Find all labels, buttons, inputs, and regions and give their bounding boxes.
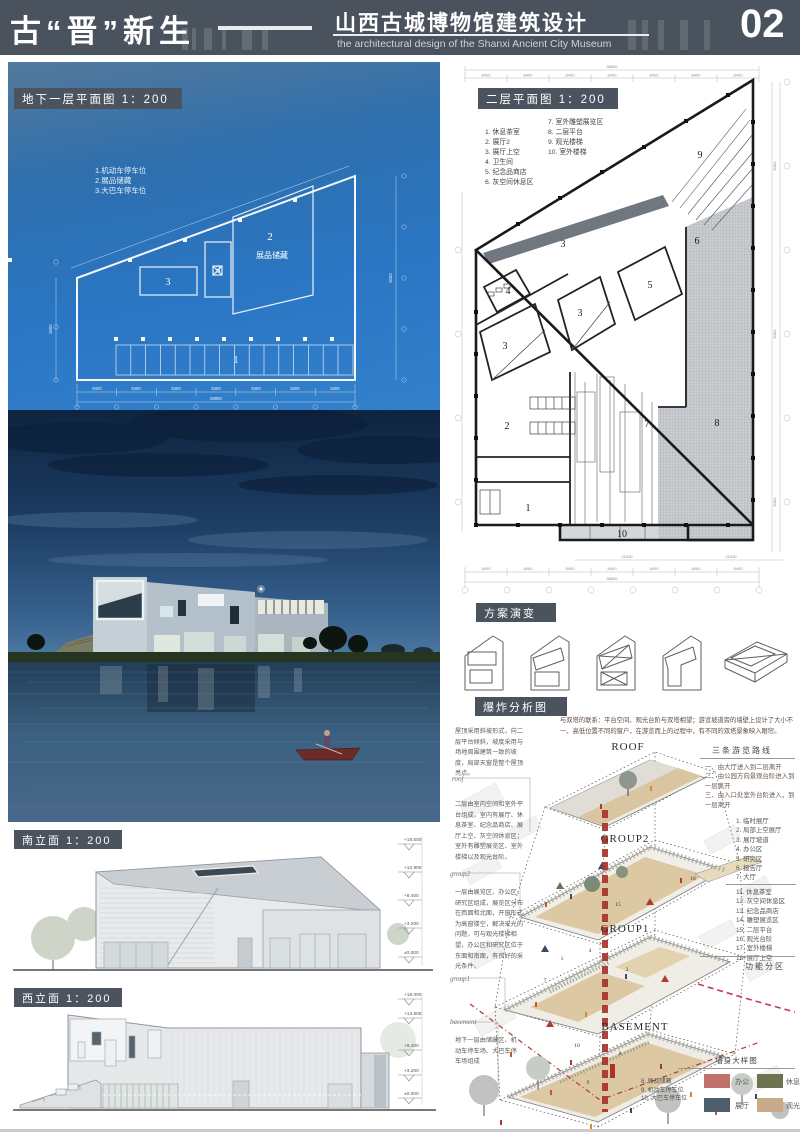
route-item: 三、由入口处室外台阶进入，到一层离开 bbox=[705, 791, 795, 810]
header: 古“晋”新生 山西古城博物馆建筑设计 the architectural des… bbox=[0, 0, 800, 55]
svg-text:8400: 8400 bbox=[566, 566, 576, 571]
svg-text:8400: 8400 bbox=[482, 73, 492, 78]
zone-item: 11. 休息茶室 bbox=[736, 888, 798, 897]
group2-tag: group2 bbox=[450, 870, 470, 878]
second-plan-title-bar: 二层平面图 1：200 bbox=[478, 88, 618, 109]
svg-text:+8.400: +8.400 bbox=[404, 1043, 419, 1049]
svg-text:8400: 8400 bbox=[482, 566, 492, 571]
legend-label: 观光 bbox=[786, 1101, 800, 1111]
svg-text:9: 9 bbox=[698, 150, 703, 161]
svg-text:16: 16 bbox=[690, 876, 696, 882]
west-elevation-drawing: +18.000 +13.800 +8.400 +3.200 ±0.000 bbox=[8, 985, 440, 1132]
svg-text:8400: 8400 bbox=[330, 386, 340, 391]
west-elevation-panel: +18.000 +13.800 +8.400 +3.200 ±0.000 bbox=[8, 985, 440, 1132]
svg-text:+18.000: +18.000 bbox=[404, 992, 422, 998]
basement-note: 地下一层由储藏区、机动车停车场、大巴车停车场组成 bbox=[455, 1036, 517, 1068]
title-dash bbox=[218, 26, 312, 30]
project-title-en: the architectural design of the Shanxi A… bbox=[337, 38, 611, 50]
south-elevation-drawing: +18.000 +12.900 +8.400 +3.200 ±0.000 bbox=[8, 826, 440, 986]
second-plan-legend-right: 7. 室外雕塑展览区 8. 二层平台 9. 观光楼梯 10. 室外楼梯 bbox=[548, 118, 603, 158]
svg-text:8400: 8400 bbox=[692, 73, 702, 78]
zone-item: 1. 临时展厅 bbox=[736, 817, 796, 826]
routes-title: 三条游览路线 bbox=[712, 745, 796, 756]
svg-text:8400: 8400 bbox=[692, 566, 702, 571]
svg-text:4: 4 bbox=[589, 948, 592, 954]
group1-tag: group1 bbox=[450, 975, 470, 983]
ramp-lines bbox=[575, 372, 652, 525]
svg-text:+3.200: +3.200 bbox=[404, 921, 419, 927]
svg-text:3: 3 bbox=[561, 239, 566, 250]
legend-line: 2.展品储藏 bbox=[95, 176, 146, 186]
zone-item: 15. 二层平台 bbox=[736, 926, 798, 935]
svg-text:8400: 8400 bbox=[650, 566, 660, 571]
sketch-4 bbox=[663, 636, 701, 690]
svg-text:1: 1 bbox=[526, 503, 531, 514]
svg-text:±0.000: ±0.000 bbox=[404, 1091, 419, 1097]
svg-text:8400: 8400 bbox=[524, 566, 534, 571]
explosion-intro: 与双塔的联系：平台空间、观光台阶与双塔相望；游览坡道旁的墙壁上设计了大小不一、高… bbox=[560, 716, 796, 737]
site-boundary-pink bbox=[698, 984, 795, 1012]
svg-text:8400: 8400 bbox=[290, 386, 300, 391]
route-item: 二、由公园方向景观台阶进入到一层离开 bbox=[705, 772, 795, 791]
svg-text:8400: 8400 bbox=[772, 497, 777, 507]
zone-item: 2. 局部上空展厅 bbox=[736, 826, 796, 835]
basement-tag: basement bbox=[450, 1018, 476, 1026]
svg-text:21000: 21000 bbox=[725, 554, 737, 559]
legend-line: 6. 灰空间休息区 bbox=[485, 178, 533, 188]
outdoor-stair-strip bbox=[560, 525, 658, 540]
zone-item: 12. 灰空间休息区 bbox=[736, 897, 798, 906]
title-underline bbox=[333, 34, 649, 36]
svg-text:9: 9 bbox=[587, 1080, 590, 1086]
svg-text:8400: 8400 bbox=[48, 324, 53, 334]
svg-text:3: 3 bbox=[166, 277, 171, 288]
svg-text:ROOF: ROOF bbox=[611, 741, 644, 753]
skyline-silhouette bbox=[182, 28, 332, 50]
sketch-1 bbox=[465, 636, 503, 690]
svg-text:8400: 8400 bbox=[388, 273, 393, 283]
routes-list: 一、由大厅进入到二层离开 二、由公园方向景观台阶进入到一层离开 三、由入口处室外… bbox=[705, 763, 795, 810]
svg-text:8: 8 bbox=[619, 1051, 622, 1057]
svg-text:8400: 8400 bbox=[251, 386, 261, 391]
svg-text:3: 3 bbox=[216, 265, 221, 276]
legend-line: 2. 展厅2 bbox=[485, 138, 533, 148]
legend-line: 7. 室外雕塑展览区 bbox=[548, 118, 603, 128]
route-item: 一、由大厅进入到二层离开 bbox=[705, 763, 795, 772]
svg-text:8400: 8400 bbox=[772, 329, 777, 339]
svg-text:10: 10 bbox=[574, 1043, 580, 1049]
zone-list-b: 11. 休息茶室 12. 灰空间休息区 13. 纪念品商店 14. 雕塑展览区 … bbox=[736, 888, 798, 963]
svg-text:±0.000: ±0.000 bbox=[404, 950, 419, 956]
evolution-panel bbox=[455, 628, 795, 700]
svg-text:2: 2 bbox=[505, 421, 510, 432]
svg-text:3: 3 bbox=[578, 308, 583, 319]
svg-text:7: 7 bbox=[645, 419, 650, 430]
svg-text:+8.400: +8.400 bbox=[404, 893, 419, 899]
presentation-board: 古“晋”新生 山西古城博物馆建筑设计 the architectural des… bbox=[0, 0, 800, 1132]
roof-note: 屋顶采用斜坡形式，向二层平台倾斜，坡度采用与场地周围建筑一致的坡度，局部天窗是整… bbox=[455, 727, 525, 780]
svg-text:8400: 8400 bbox=[171, 386, 181, 391]
zone-item: 17. 室外楼梯 bbox=[736, 944, 798, 953]
svg-text:8400: 8400 bbox=[772, 161, 777, 171]
svg-text:+18.000: +18.000 bbox=[404, 837, 422, 843]
svg-text:+3.200: +3.200 bbox=[404, 1068, 419, 1074]
svg-text:GROUP1: GROUP1 bbox=[601, 923, 650, 935]
routes-underline bbox=[700, 758, 795, 759]
svg-text:10: 10 bbox=[617, 529, 627, 540]
legend-label: 办公 bbox=[735, 1077, 749, 1087]
terrace-hatch bbox=[658, 197, 753, 525]
svg-text:7: 7 bbox=[544, 978, 547, 984]
svg-text:8400: 8400 bbox=[734, 73, 744, 78]
legend-line: 9. 观光楼梯 bbox=[548, 138, 603, 148]
legend-swatch-sightseeing bbox=[757, 1098, 783, 1112]
second-plan-legend-left: 1. 休息茶室 2. 展厅2 3. 展厅上空 4. 卫生间 5. 纪念品商店 6… bbox=[485, 128, 533, 188]
roof-slab bbox=[550, 760, 705, 827]
svg-text:5: 5 bbox=[648, 280, 653, 291]
svg-text:6: 6 bbox=[695, 236, 700, 247]
legend-line: 1. 休息茶室 bbox=[485, 128, 533, 138]
svg-text:8400: 8400 bbox=[650, 73, 660, 78]
svg-text:15: 15 bbox=[615, 902, 621, 908]
legend-line: 1.机动车停车位 bbox=[95, 166, 146, 176]
zone-item: 14. 雕塑展览区 bbox=[736, 916, 798, 925]
svg-text:2: 2 bbox=[267, 231, 273, 243]
svg-text:21000: 21000 bbox=[621, 554, 633, 559]
svg-text:1: 1 bbox=[234, 355, 239, 366]
svg-text:2: 2 bbox=[626, 967, 629, 973]
night-rendering bbox=[8, 410, 440, 822]
svg-text:58800: 58800 bbox=[606, 576, 618, 581]
svg-text:3: 3 bbox=[503, 341, 508, 352]
board-series-title: 古“晋”新生 bbox=[10, 6, 195, 51]
group1-note: 一层由展览区、办公区、研究区组成，展览区分布在西面和北面，开窗形式为高窗镂空，解… bbox=[455, 888, 525, 973]
second-floor-plan-panel: 58800 84008400 84008400 84008400 8400 21… bbox=[450, 62, 795, 597]
legend-label: 休息 bbox=[786, 1077, 800, 1087]
interior-walls bbox=[476, 227, 686, 525]
legend-swatch-rest bbox=[757, 1074, 783, 1088]
evolution-title-bar: 方案演变 bbox=[476, 603, 556, 622]
zone-footer-rule bbox=[700, 956, 795, 957]
group2-note: 二层由室内空间和室外平台组成，室内有展厅、休息茶室、纪念品商店、展厅上空、灰空间… bbox=[455, 800, 525, 864]
zone-divider bbox=[726, 884, 796, 885]
legend-label: 展厅 bbox=[735, 1101, 749, 1111]
svg-text:8400: 8400 bbox=[92, 386, 102, 391]
svg-text:1: 1 bbox=[561, 956, 564, 962]
svg-text:8400: 8400 bbox=[131, 386, 141, 391]
sketch-3 bbox=[597, 636, 635, 690]
svg-text:8400: 8400 bbox=[566, 73, 576, 78]
legend-line: 4. 卫生间 bbox=[485, 158, 533, 168]
tree bbox=[380, 1022, 416, 1058]
svg-text:8400: 8400 bbox=[211, 386, 221, 391]
zone-item: 16. 观光台阶 bbox=[736, 935, 798, 944]
dimension-labels: 8400 8400 8400 8400 8400 8400 8400 58800… bbox=[48, 273, 393, 401]
legend-line: 8. 二层平台 bbox=[548, 128, 603, 138]
svg-text:+13.800: +13.800 bbox=[404, 1011, 422, 1017]
svg-text:4: 4 bbox=[506, 286, 511, 297]
legend-line: 10. 室外楼梯 bbox=[548, 148, 603, 158]
south-elevation-panel: +18.000 +12.900 +8.400 +3.200 ±0.000 bbox=[8, 826, 440, 986]
legend-title: 墙身大样图 bbox=[678, 1055, 795, 1069]
legend-swatch-office bbox=[704, 1074, 730, 1088]
zone-item: 6. 报告厅 bbox=[736, 864, 796, 873]
zone-item: 7. 大厅 bbox=[736, 873, 796, 882]
column-grid-dots bbox=[8, 198, 334, 341]
legend-line: 3.大巴车停车位 bbox=[95, 186, 146, 196]
zone-item: 4. 办公区 bbox=[736, 845, 796, 854]
elevation-marks: +18.000 +12.900 +8.400 +3.200 ±0.000 bbox=[398, 836, 422, 966]
evolution-sketches bbox=[455, 628, 795, 700]
legend-line: 5. 纪念品商店 bbox=[485, 168, 533, 178]
svg-text:GROUP2: GROUP2 bbox=[601, 833, 650, 845]
svg-text:58800: 58800 bbox=[210, 396, 222, 401]
legend-line: 3. 展厅上空 bbox=[485, 148, 533, 158]
night-rendering-panel bbox=[8, 410, 440, 822]
svg-text:8400: 8400 bbox=[608, 73, 618, 78]
room2-name: 展品储藏 bbox=[256, 250, 288, 260]
room-numbers: 2 3 3 1 展品储藏 bbox=[166, 231, 289, 366]
basement-plan-drawing: 8400 8400 8400 8400 8400 8400 8400 58800… bbox=[8, 62, 440, 410]
svg-text:8400: 8400 bbox=[608, 566, 618, 571]
svg-text:8400: 8400 bbox=[734, 566, 744, 571]
zone-footer: 功能分区 bbox=[745, 961, 785, 972]
svg-text:8400: 8400 bbox=[524, 73, 534, 78]
sketch-5 bbox=[725, 642, 787, 682]
zone-list-a: 1. 临时展厅 2. 局部上空展厅 3. 展厅坡道 4. 办公区 5. 研究区 … bbox=[736, 817, 796, 883]
svg-text:8: 8 bbox=[715, 418, 720, 429]
roof-tag: roof bbox=[452, 775, 463, 783]
page-number: 02 bbox=[740, 2, 785, 47]
zone-item: 13. 纪念品商店 bbox=[736, 907, 798, 916]
project-title-cn: 山西古城博物馆建筑设计 bbox=[335, 7, 588, 37]
basement-plan-legend: 1.机动车停车位 2.展品储藏 3.大巴车停车位 bbox=[95, 166, 146, 196]
legend-swatch-exhibition bbox=[704, 1098, 730, 1112]
svg-text:+12.900: +12.900 bbox=[404, 865, 422, 871]
svg-text:BASEMENT: BASEMENT bbox=[601, 1021, 668, 1033]
zone-item: 5. 研究区 bbox=[736, 855, 796, 864]
svg-text:58800: 58800 bbox=[606, 64, 618, 69]
zone-item: 3. 展厅坡道 bbox=[736, 836, 796, 845]
sketch-2 bbox=[531, 636, 569, 690]
basement-plan-panel: 8400 8400 8400 8400 8400 8400 8400 58800… bbox=[8, 62, 440, 410]
basement-plan-title-bar: 地下一层平面图 1：200 bbox=[14, 88, 182, 109]
